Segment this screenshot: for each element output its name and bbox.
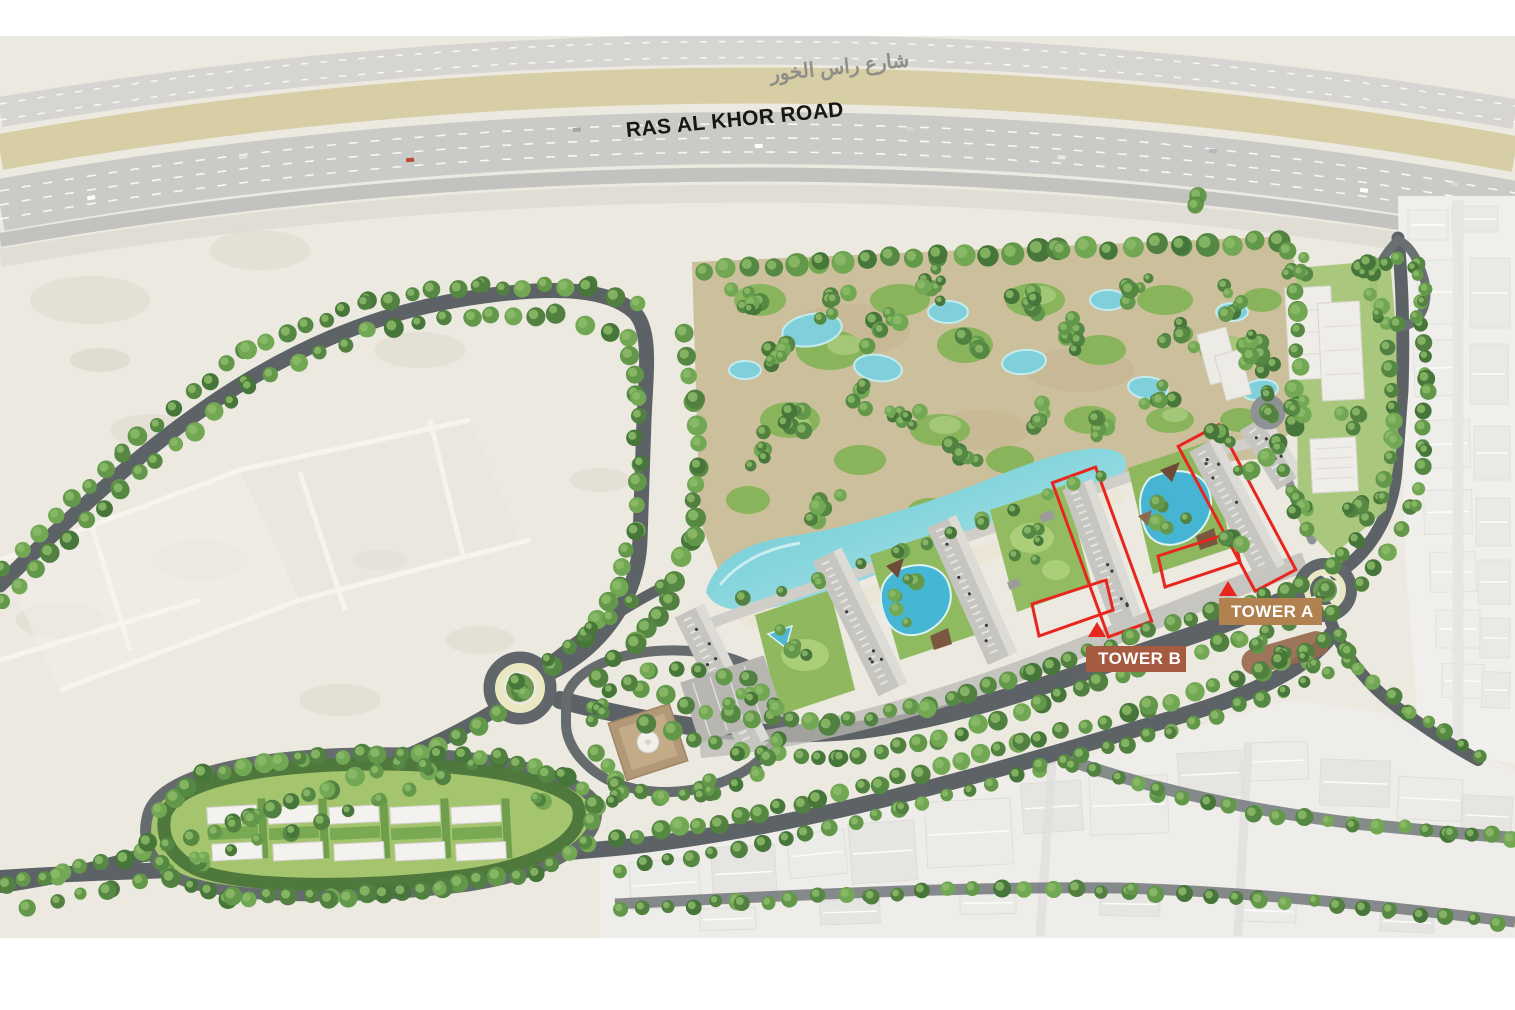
site-plan-rendering: شارع راس الخور RAS AL KHOR ROAD TOWER A … bbox=[0, 0, 1515, 1010]
page: { "map": { "road_label": "RAS AL KHOR RO… bbox=[0, 0, 1515, 1010]
site-plan-canvas bbox=[0, 0, 1515, 1010]
industrial-area-northeast bbox=[1398, 196, 1515, 765]
